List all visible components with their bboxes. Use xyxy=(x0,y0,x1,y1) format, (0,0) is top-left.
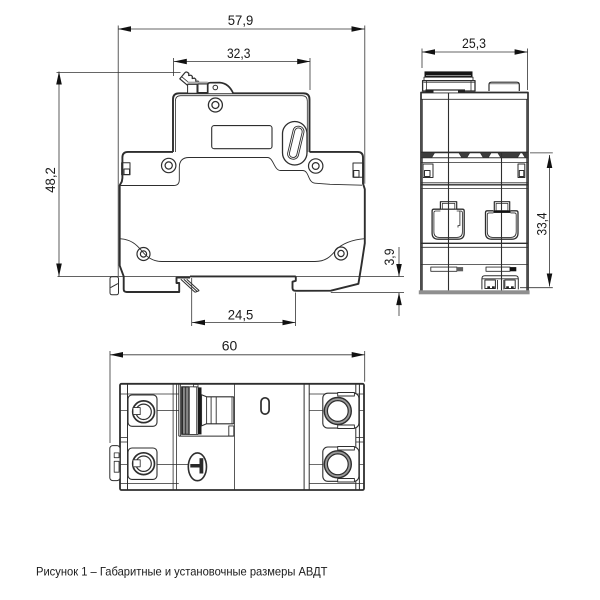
svg-text:25,3: 25,3 xyxy=(462,36,486,51)
svg-text:32,3: 32,3 xyxy=(227,46,251,61)
svg-text:57,9: 57,9 xyxy=(228,13,254,28)
svg-text:24,5: 24,5 xyxy=(228,308,254,323)
svg-text:48,2: 48,2 xyxy=(43,167,58,193)
svg-text:60: 60 xyxy=(222,338,238,353)
svg-text:3,9: 3,9 xyxy=(382,249,397,266)
svg-text:33,4: 33,4 xyxy=(535,212,550,235)
svg-text:Рисунок 1 – Габаритные и устан: Рисунок 1 – Габаритные и установочные ра… xyxy=(36,565,328,579)
